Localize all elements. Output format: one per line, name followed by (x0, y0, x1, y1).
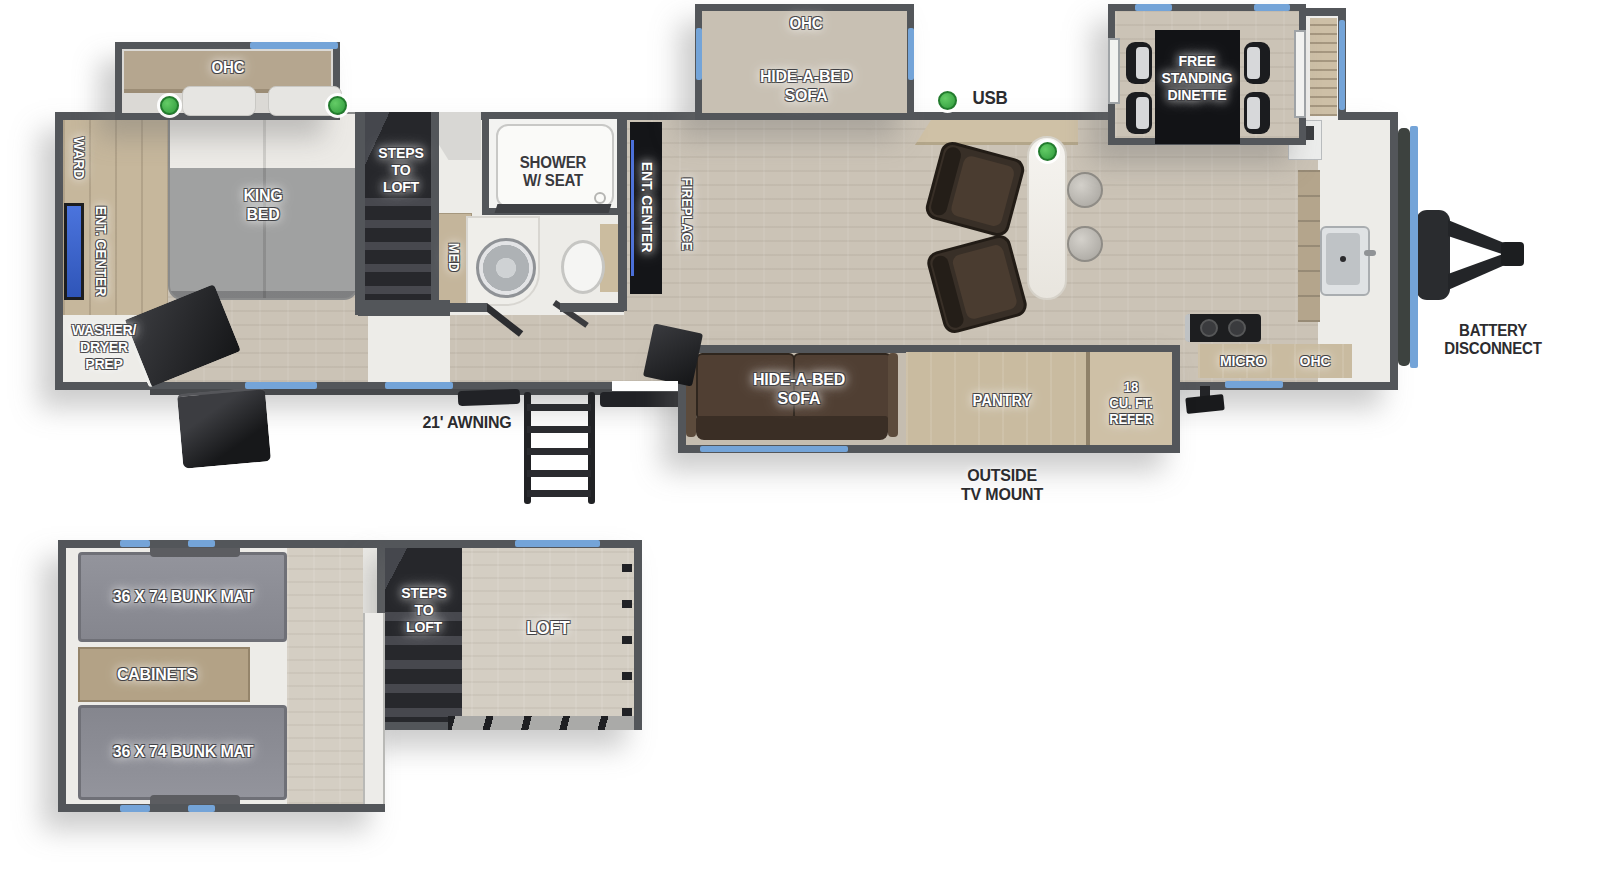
dinette-chair (1126, 92, 1152, 134)
med-label: MED (445, 243, 461, 272)
island-light-icon (1038, 142, 1057, 161)
dinette-slide-window (1254, 4, 1290, 11)
window (245, 382, 317, 389)
loft-partition-wall (363, 613, 385, 804)
loft-window (188, 805, 215, 812)
sofa-back (696, 416, 888, 440)
loft-window (188, 540, 215, 547)
faucet-icon (1364, 250, 1376, 256)
dinette-side-window (1294, 30, 1306, 118)
sofa-arm (888, 353, 898, 437)
loft-steps-label: STEPS TO LOFT (401, 584, 446, 635)
pantry-label: PANTRY (972, 392, 1031, 410)
shower-threshold (495, 204, 612, 213)
wall (437, 303, 487, 312)
hallway-floor (368, 315, 450, 382)
micro-label: MICRO (1220, 352, 1266, 369)
outside-tv-label: OUTSIDE TV MOUNT (961, 466, 1043, 505)
living-ent-center-label: ENT. CENTER (638, 162, 655, 252)
shower-drain-icon (594, 192, 606, 204)
bar-stool (1067, 226, 1103, 262)
awning-arm (458, 389, 520, 406)
bottom-slide-window (700, 446, 848, 452)
front-window-trim (1410, 126, 1418, 368)
burner-icon (1228, 319, 1246, 337)
dinette-chair (1126, 42, 1152, 84)
battery-disconnect-label: BATTERY DISCONNECT (1444, 322, 1542, 358)
wall (355, 112, 365, 315)
dinette-chair (1244, 92, 1270, 134)
sink-drain-icon (1340, 256, 1346, 262)
wall (618, 112, 627, 311)
washer-dryer-label: WASHER/ DRYER PREP (72, 321, 136, 372)
kitchen-cabinets (1298, 170, 1320, 322)
entry-opening (612, 381, 678, 391)
outside-griddle (177, 386, 271, 468)
bar-stool (1067, 172, 1103, 208)
bedroom-tv (64, 203, 84, 300)
front-nook-window (1339, 20, 1345, 110)
sofa-top-label: HIDE-A-BED SOFA (760, 67, 852, 106)
step-tread (527, 404, 591, 411)
awning-arm (600, 392, 686, 407)
kitchen-ohc-label: OHC (1300, 352, 1331, 369)
pantry-refer-divider (1086, 352, 1090, 445)
stove (1185, 314, 1261, 342)
bunk-top-label: 36 X 74 BUNK MAT (113, 587, 254, 606)
dinette-chair (1244, 42, 1270, 84)
sofa-slide-window (696, 28, 702, 80)
usb-label: USB (972, 88, 1007, 109)
loft-window (515, 540, 600, 547)
step-tread (527, 448, 591, 455)
dinette-slide-window (1135, 4, 1172, 11)
bunk-bottom-label: 36 X 74 BUNK MAT (113, 742, 254, 761)
wall (431, 112, 439, 315)
reading-light-icon (160, 96, 179, 115)
loft-window (120, 540, 150, 547)
sofa-top-ohc-label: OHC (790, 15, 823, 33)
loft-label: LOFT (526, 618, 569, 639)
hutch-cabinet (1310, 18, 1337, 116)
window (1225, 381, 1283, 388)
wall (560, 303, 624, 312)
pillow (182, 86, 256, 116)
refer-label: 18 CU. FT. REFER (1109, 380, 1153, 428)
step-tread (527, 426, 591, 433)
floorplan-canvas: OHC WARD ENT. CENTER KING BED WASHER/ DR… (0, 0, 1600, 879)
sofa-bottom-label: HIDE-A-BED SOFA (753, 370, 845, 409)
dinette-label: FREE STANDING DINETTE (1161, 52, 1232, 103)
step-tread (527, 490, 591, 497)
bedroom-ohc-label: OHC (212, 59, 245, 77)
step-tread (527, 470, 591, 477)
ward-label: WARD (70, 137, 87, 179)
window (385, 382, 453, 389)
sofa-slide-window (908, 28, 914, 80)
steps-to-loft-treads (365, 198, 437, 315)
loft-window (120, 805, 150, 812)
bedroom-ent-center-label: ENT. CENTER (92, 206, 109, 296)
ent-center-tv-edge (631, 140, 634, 276)
bunk-headboard (150, 548, 240, 557)
reading-light-icon (328, 96, 347, 115)
fireplace-label: FIREPLACE (678, 178, 694, 251)
awning-label: 21' AWNING (422, 413, 511, 432)
shower-label: SHOWER W/ SEAT (520, 154, 587, 190)
dinette-side-window (1108, 38, 1120, 104)
burner-icon (1200, 319, 1218, 337)
cabinets-label: CABINETS (117, 665, 197, 684)
steps-to-loft-label: STEPS TO LOFT (378, 144, 423, 195)
usb-charge-light-icon (938, 91, 957, 110)
loft-railing (448, 716, 634, 730)
loft-ladder-ticks (622, 552, 632, 716)
loft-aisle-floor (287, 548, 363, 804)
king-bed-label: KING BED (243, 186, 282, 225)
bathroom-sink (476, 238, 536, 298)
bunk-headboard (150, 795, 240, 804)
outside-tv (1185, 394, 1224, 414)
toilet (561, 240, 605, 294)
bedroom-slide-window (250, 42, 338, 49)
